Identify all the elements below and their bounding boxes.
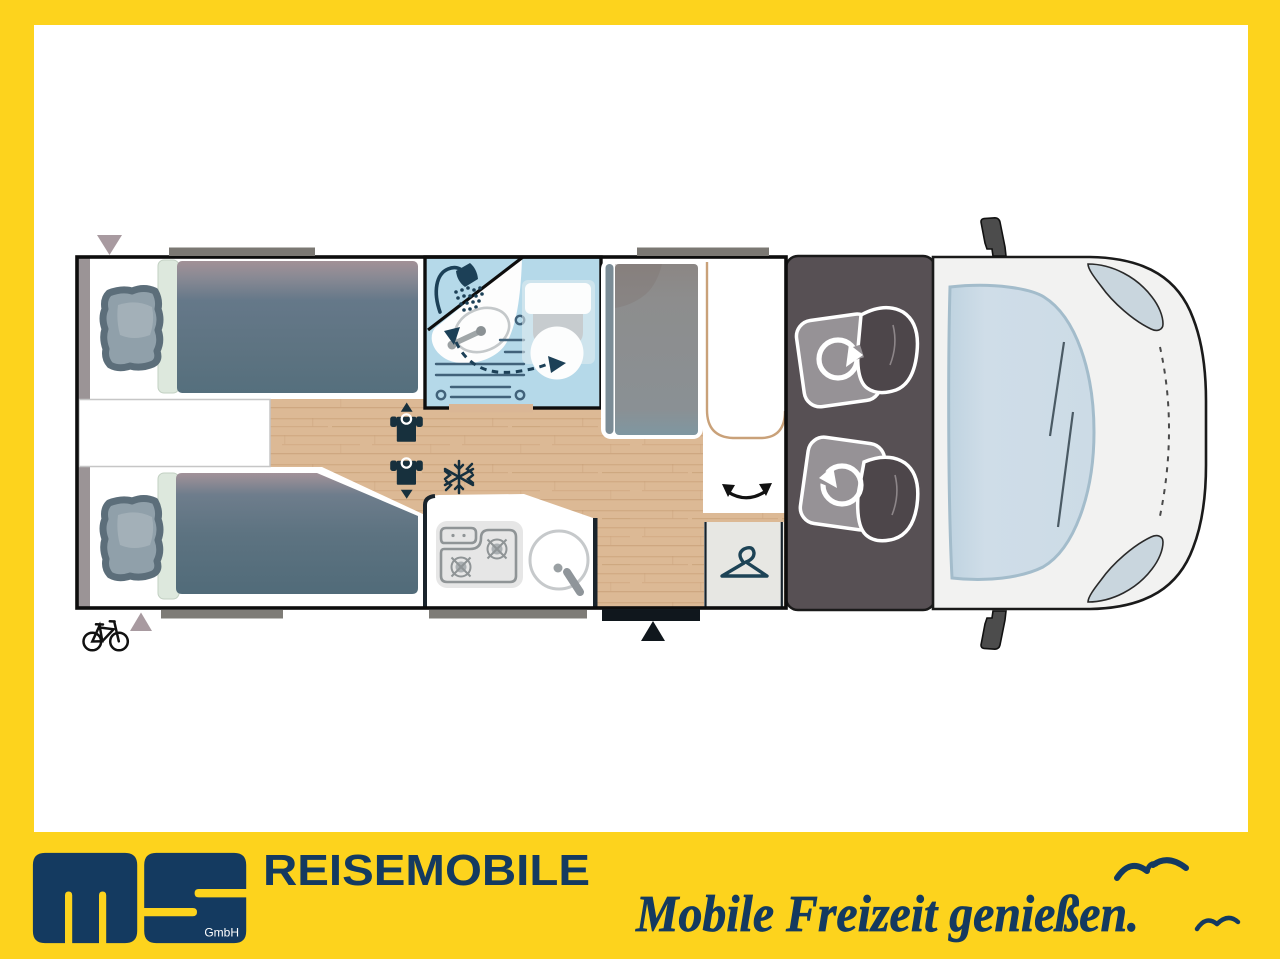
svg-text:Mobile Freizeit genießen.: Mobile Freizeit genießen.: [635, 886, 1139, 943]
svg-text:GmbH: GmbH: [204, 926, 239, 940]
svg-text:REISEMOBILE: REISEMOBILE: [263, 846, 590, 895]
